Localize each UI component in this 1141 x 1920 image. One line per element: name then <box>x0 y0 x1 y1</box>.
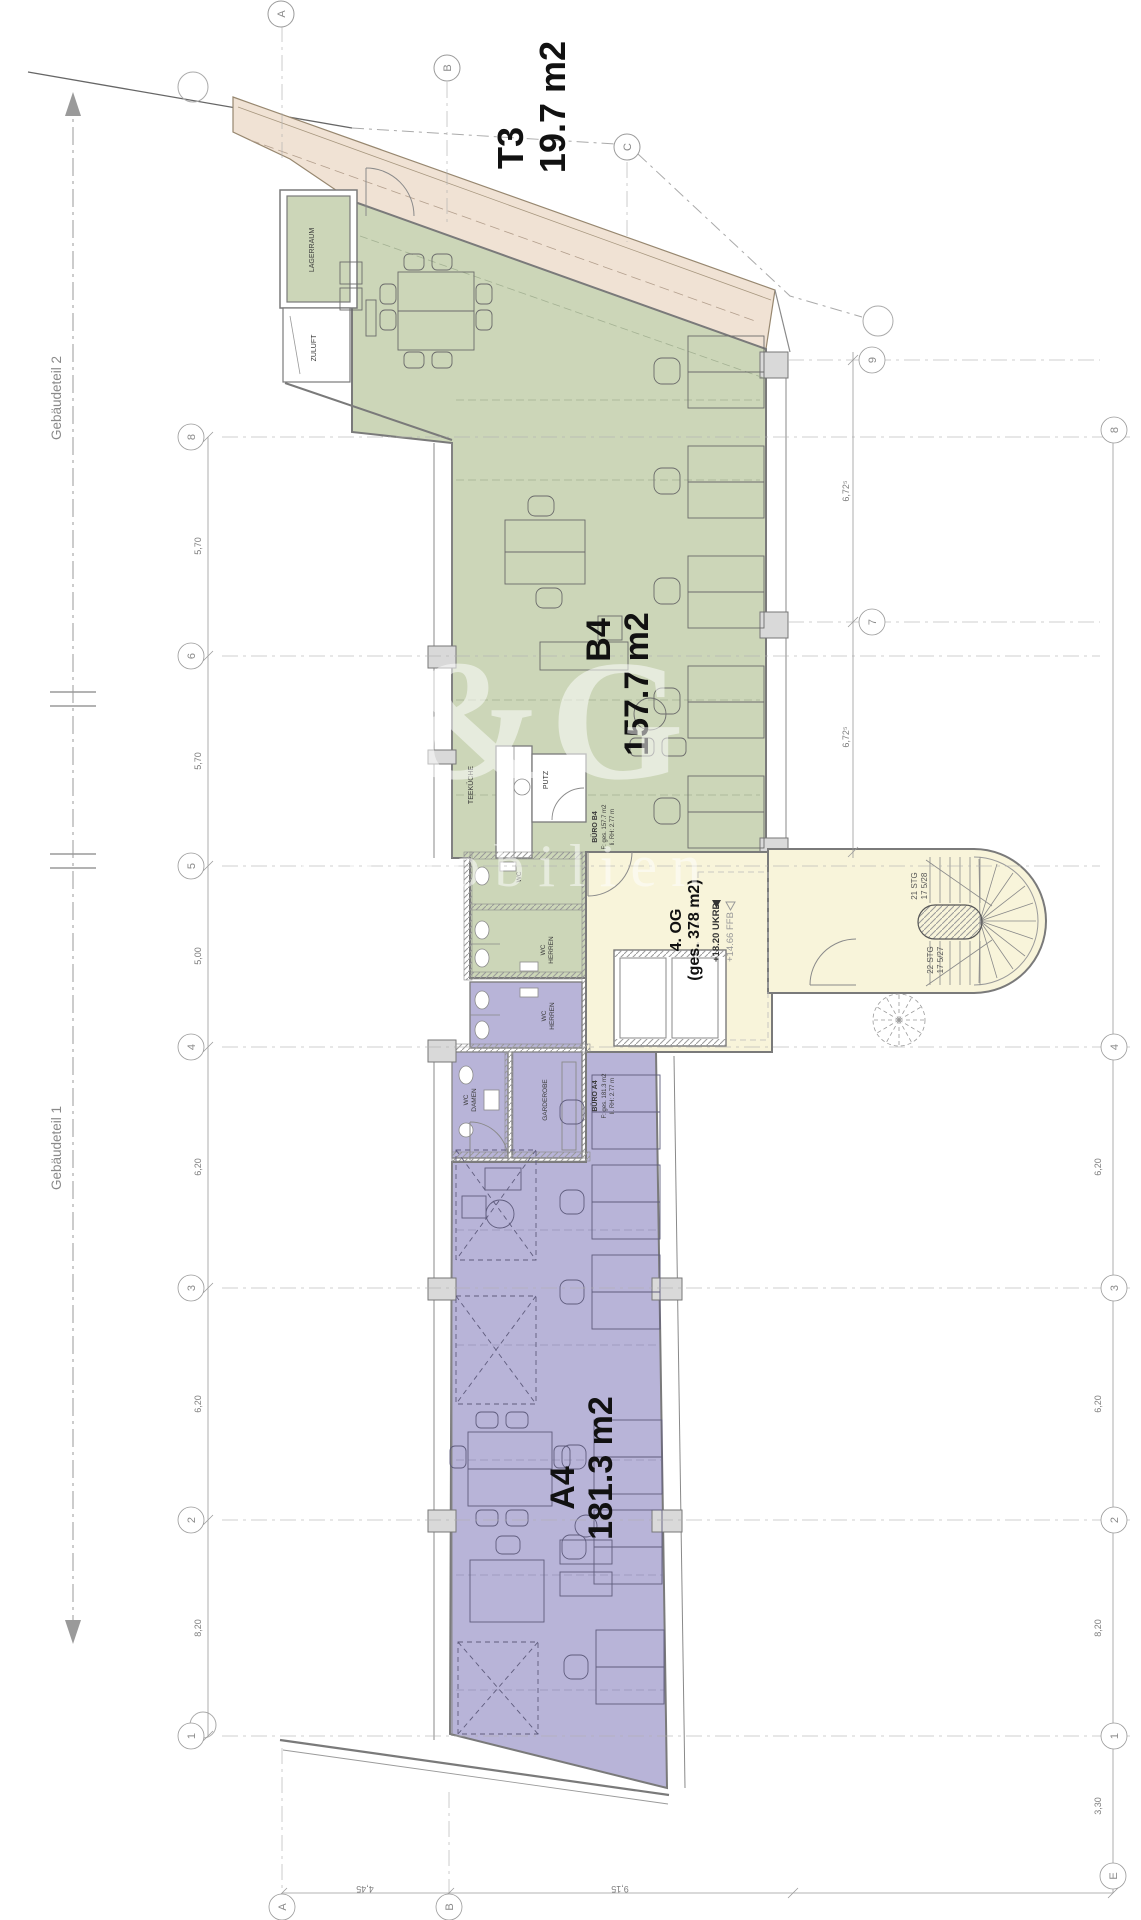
room-label-wc-damen: DAMEN <box>471 1088 478 1112</box>
grid-bubble-row: 1 <box>1101 1723 1127 1749</box>
stair-label-21stg-rise: 17 5/28 <box>920 872 929 899</box>
grid-bubble-col-b: B <box>434 55 460 81</box>
watermark-logo: E&G <box>280 626 690 816</box>
svg-text:E: E <box>1108 1872 1120 1879</box>
label-t3-area: 19.7 m2 <box>532 41 573 173</box>
wall-pillar <box>428 1510 456 1532</box>
room-label-zuluft: ZULUFT <box>311 334 318 362</box>
svg-text:B: B <box>444 1903 456 1910</box>
svg-text:7: 7 <box>867 619 879 625</box>
grid-bubble-row: 3 <box>1101 1275 1127 1301</box>
wall-pillar <box>652 1510 682 1532</box>
grid-bubble-row: 4 <box>178 1034 204 1060</box>
section-label-part1: Gebäudeteil 1 <box>49 1106 64 1190</box>
empty-grid-circle <box>178 72 208 102</box>
grid-bubble-col-c: C <box>614 134 640 160</box>
svg-text:6: 6 <box>186 653 198 659</box>
room-lagerraum <box>287 196 350 302</box>
label-level-ukrd: +18.20 UKRD <box>711 902 722 962</box>
grid-bubble-row: 8 <box>1101 417 1127 443</box>
room-tag-buero-a4: BÜRO A4 <box>590 1080 599 1111</box>
svg-text:3: 3 <box>1109 1285 1121 1291</box>
svg-text:5: 5 <box>186 863 198 869</box>
svg-text:8,20: 8,20 <box>193 1619 203 1637</box>
stair-core <box>918 905 982 939</box>
room-label-wc-herren-b4: WC <box>540 944 547 955</box>
svg-text:6,20: 6,20 <box>193 1395 203 1413</box>
label-level-ffb: +14.66 FFB <box>725 912 736 962</box>
label-a4-area: 181.3 m2 <box>582 1396 620 1540</box>
svg-text:5,00: 5,00 <box>193 947 203 965</box>
dimension-right-inner: 9 7 6,72⁵ 6,72⁵ <box>841 347 885 858</box>
svg-text:6,72⁵: 6,72⁵ <box>841 726 851 748</box>
stair-label-22stg: 22 STG <box>926 946 935 974</box>
grid-bubble-row: 1 <box>178 1723 204 1749</box>
wall-pillar <box>428 1278 456 1300</box>
section-line: Gebäudeteil 2 Gebäudeteil 1 <box>49 92 96 1644</box>
svg-text:9,15: 9,15 <box>611 1884 629 1894</box>
room-wc-damen <box>452 1052 508 1158</box>
svg-text:A: A <box>276 10 288 18</box>
grid-bubble-col-a-bottom: A <box>269 1894 295 1920</box>
grid-bubble-row: 9 <box>859 347 885 373</box>
stair-label-22stg-rise: 17 5/27 <box>936 946 945 973</box>
svg-text:8,20: 8,20 <box>1093 1619 1103 1637</box>
wall-pillar <box>652 1278 682 1300</box>
label-floor: 4. OG <box>668 909 685 952</box>
stair-label-21stg: 21 STG <box>910 872 919 900</box>
grid-bubble-row: 2 <box>178 1507 204 1533</box>
room-tag-buero-a4-area: F: ges. 181.3 m2 <box>602 1073 608 1119</box>
svg-text:8: 8 <box>1109 427 1121 433</box>
svg-text:A: A <box>277 1903 289 1911</box>
svg-text:B: B <box>442 64 454 71</box>
grid-bubble-col-e-bottom: E <box>1100 1863 1126 1889</box>
grid-bubble-row: 8 <box>178 424 204 450</box>
elevator-block <box>614 950 726 1046</box>
svg-text:6,20: 6,20 <box>193 1158 203 1176</box>
room-tag-buero-a4-height: li. RH: 2.77 m <box>610 1078 616 1114</box>
arrow-up <box>65 92 81 116</box>
svg-text:2: 2 <box>186 1517 198 1523</box>
svg-text:5,70: 5,70 <box>193 752 203 770</box>
label-t3: T3 <box>490 127 531 169</box>
room-label-wc-herren-a4: HERREN <box>549 1002 556 1030</box>
svg-text:1: 1 <box>1109 1733 1121 1739</box>
svg-text:9: 9 <box>867 357 879 363</box>
wall-pillar <box>428 1040 456 1062</box>
dimension-left: 8 6 5 4 3 2 1 5,70 5,70 5,00 6,20 6,20 8… <box>178 424 213 1749</box>
room-label-garderobe: GARDEROBE <box>542 1079 549 1121</box>
room-label-wc-herren-a4: WC <box>541 1010 548 1021</box>
svg-text:2: 2 <box>1109 1517 1121 1523</box>
svg-text:C: C <box>622 143 634 151</box>
empty-grid-circle <box>863 306 893 336</box>
svg-text:3,30: 3,30 <box>1093 1797 1103 1815</box>
svg-text:4,45: 4,45 <box>356 1884 374 1894</box>
grid-bubble-row: 2 <box>1101 1507 1127 1533</box>
svg-text:6,20: 6,20 <box>1093 1395 1103 1413</box>
svg-text:5,70: 5,70 <box>193 537 203 555</box>
floorplan-sheet: A B C 8 6 5 4 3 2 1 5,70 5,70 5,00 6,20 … <box>0 0 1141 1920</box>
dimension-right-outer: 8 4 3 2 1 6,20 6,20 8,20 3,30 <box>1093 417 1127 1893</box>
watermark-word: Immobilien <box>295 833 715 899</box>
svg-text:4: 4 <box>186 1044 198 1050</box>
grid-bubble-row: 6 <box>178 643 204 669</box>
svg-text:8: 8 <box>186 434 198 440</box>
floorplan-drawing: A B C 8 6 5 4 3 2 1 5,70 5,70 5,00 6,20 … <box>0 0 1141 1920</box>
svg-text:6,20: 6,20 <box>1093 1158 1103 1176</box>
svg-text:6,72⁵: 6,72⁵ <box>841 480 851 502</box>
grid-bubble-row: 4 <box>1101 1034 1127 1060</box>
svg-text:1: 1 <box>186 1733 198 1739</box>
svg-text:4: 4 <box>1109 1044 1121 1050</box>
grid-bubble-row: 5 <box>178 853 204 879</box>
office-a4-zone <box>280 982 685 1804</box>
label-a4: A4 <box>544 1466 582 1510</box>
grid-bubble-row: 3 <box>178 1275 204 1301</box>
grid-bubble-col-b-bottom: B <box>436 1894 462 1920</box>
dimension-bottom: A B E 4,45 9,15 <box>269 1863 1126 1920</box>
watermark: E&G Immobilien <box>280 626 715 899</box>
room-label-wc-herren-b4: HERREN <box>548 936 555 964</box>
room-label-lagerraum: LAGERRAUM <box>309 228 316 273</box>
svg-text:3: 3 <box>186 1285 198 1291</box>
grid-bubble-row: 7 <box>859 609 885 635</box>
room-label-wc-damen: WC <box>463 1094 470 1105</box>
grid-bubble-col-a: A <box>268 1 294 27</box>
spiral-stair <box>873 994 925 1046</box>
section-label-part2: Gebäudeteil 2 <box>49 356 64 440</box>
arrow-down <box>65 1620 81 1644</box>
